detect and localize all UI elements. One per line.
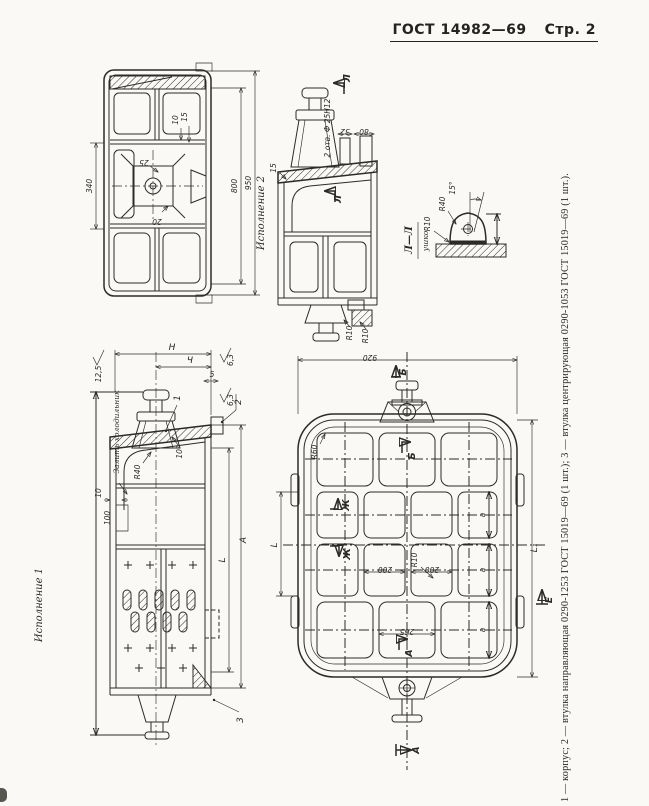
dim-200b-label: 200 [425, 565, 440, 574]
side-bracket [211, 417, 223, 434]
dim-800: 800 [211, 88, 246, 284]
section-arrow-zh-2: Ж [330, 546, 353, 561]
dim-340: 340 [85, 143, 104, 229]
roughness-check-icon [93, 350, 104, 365]
outer-flange [104, 70, 211, 296]
dim-20-arrow [162, 206, 168, 212]
vent-slots [123, 590, 195, 632]
holes-note: 2 отв. Ф 25Н12 [323, 98, 332, 157]
dim-L-label: L [218, 557, 228, 562]
dim-10-15: 10 15 [171, 112, 189, 142]
trunnion-bottom [352, 677, 462, 722]
r10-label: R10 [410, 552, 419, 567]
variant2-label: Исполнение 2 [256, 176, 267, 251]
dim-A-label: А [239, 537, 249, 544]
section-arrow-b-inner: Б [402, 442, 418, 460]
section-zh1-label: Ж [341, 499, 352, 512]
hatched-wedge [193, 665, 211, 688]
variant1-label: Исполнение 1 [34, 568, 45, 643]
angle-label: 15° [448, 181, 457, 195]
angle-line [474, 192, 484, 232]
section-l-top-label: Л [342, 74, 353, 83]
dim-25-arrow [150, 166, 158, 172]
dim-20-label: 20 [152, 217, 162, 226]
r10-label: R10 [423, 216, 432, 231]
view-plan: 920 Б [270, 352, 555, 770]
r40-label: R40 [438, 196, 447, 211]
dim-80: 80 [354, 127, 374, 136]
dim-L-label: L [270, 542, 280, 547]
dim-100-label: 100 [103, 511, 112, 526]
pour-cup-profile [191, 170, 206, 203]
lug-seat [450, 241, 486, 245]
section-arrow-zh-1: Ж [330, 499, 352, 512]
section-b-inner-label: Б [407, 452, 418, 459]
callout-3: 3 [213, 699, 246, 723]
scan-artifact [0, 788, 7, 802]
section-title: Л—Л [404, 225, 415, 255]
dim-10-label: 10 [171, 115, 180, 125]
dim-a2-label: a [478, 567, 487, 572]
dim-920-label: 920 [363, 353, 378, 362]
dim-800-label: 800 [230, 179, 239, 194]
dim-L-left: L [270, 492, 298, 596]
r10-label-b: R10 [361, 328, 370, 343]
dim-340-label: 340 [85, 179, 94, 194]
view-bottom: 340 800 950 10 15 25 20 [85, 63, 260, 303]
view-variant1: Исполнение 1 Н Ч 5 12,5 6,3 [34, 343, 249, 745]
angle-arc [470, 199, 481, 200]
dim-A-right: А [211, 425, 249, 688]
dim-H-label: Н [169, 343, 176, 353]
section-arrow-b-top: Б [391, 366, 409, 378]
page: ГОСТ 14982—69Стр. 2 [0, 0, 649, 806]
hatched-wall [278, 161, 377, 183]
chill-note: Залить холодильник [112, 390, 121, 474]
section-arrow-l-mid: Л [325, 191, 344, 204]
dim-Ch-label: Ч [187, 356, 193, 366]
section-zh2-label: Ж [342, 548, 353, 561]
angle-10-label: 10° [175, 445, 184, 459]
dim-200a-label: 200 [378, 565, 393, 574]
trunnion-bottom [305, 305, 347, 341]
view-e-label: Е [544, 596, 555, 603]
r10-label-a: R10 [345, 325, 354, 340]
section-arrow-l-top: Л [334, 74, 353, 94]
dim-265: 265 [379, 627, 435, 636]
section-a-inner-label: А [404, 649, 415, 657]
r10-leader [434, 231, 449, 242]
dim-5-label: 5 [210, 370, 215, 379]
dim-80-label: 80 [359, 127, 369, 136]
dim-a3-label: a [478, 627, 487, 632]
roughness-mark-12-5: 12,5 [93, 350, 104, 382]
dim-L1-label: L₁ [530, 543, 540, 552]
hatched-wall [110, 425, 211, 449]
dim-25-label: 25 [139, 158, 149, 167]
dim-32: 32 [338, 127, 352, 136]
dim-15-label: 15 [269, 163, 278, 173]
drawing-canvas: 340 800 950 10 15 25 20 [0, 0, 649, 806]
r60-label: R60 [310, 444, 319, 459]
roughness-6-3-label: 6,3 [226, 354, 235, 366]
side-lug-hidden [205, 610, 219, 638]
dim-10-wall: 10 [94, 488, 128, 500]
callout-3-label: 3 [236, 717, 246, 723]
trunnion-bottom [138, 695, 176, 739]
roughness-mark-6-3-a: 6,3 [220, 348, 235, 366]
dim-H: Н [115, 343, 211, 415]
roughness-mark-6-3-b: 6,3 [220, 388, 235, 406]
callout-2-label: 2 [234, 399, 244, 405]
dim-32-label: 32 [340, 127, 350, 136]
dim-a1-label: a [478, 512, 487, 517]
view-lug-section: Л—Л ушко R40 R10 15° [404, 181, 506, 259]
roughness-12-5-label: 12,5 [94, 365, 103, 382]
view-arrow-e: Е [536, 590, 555, 604]
section-l-mid-label: Л [333, 195, 344, 204]
dim-950-label: 950 [244, 176, 253, 191]
r60-leader [320, 434, 325, 444]
dim-265-label: 265 [400, 627, 415, 636]
body-inner [110, 437, 211, 688]
r40-leader [143, 452, 151, 463]
section-subtitle: ушко [421, 230, 430, 252]
dim-a-group: a a a [478, 492, 489, 658]
dim-Ch: Ч [156, 356, 211, 367]
view-variant2: Исполнение 2 [256, 74, 377, 343]
r40-label: R40 [133, 464, 142, 479]
dim-10-label: 10 [94, 488, 103, 498]
section-arrow-a-bottom: А [396, 744, 422, 756]
figure-caption: 1 — корпус; 2 — втулка направляющая 0290… [560, 86, 571, 802]
dim-15-label: 15 [180, 112, 189, 122]
dim-height [486, 214, 501, 244]
dim-L1-right: L₁ [517, 420, 540, 677]
callout-1-label: 1 [173, 395, 183, 401]
hatched-base [436, 244, 506, 257]
r40-leader [448, 211, 456, 224]
section-a-bottom-label: А [411, 746, 422, 754]
